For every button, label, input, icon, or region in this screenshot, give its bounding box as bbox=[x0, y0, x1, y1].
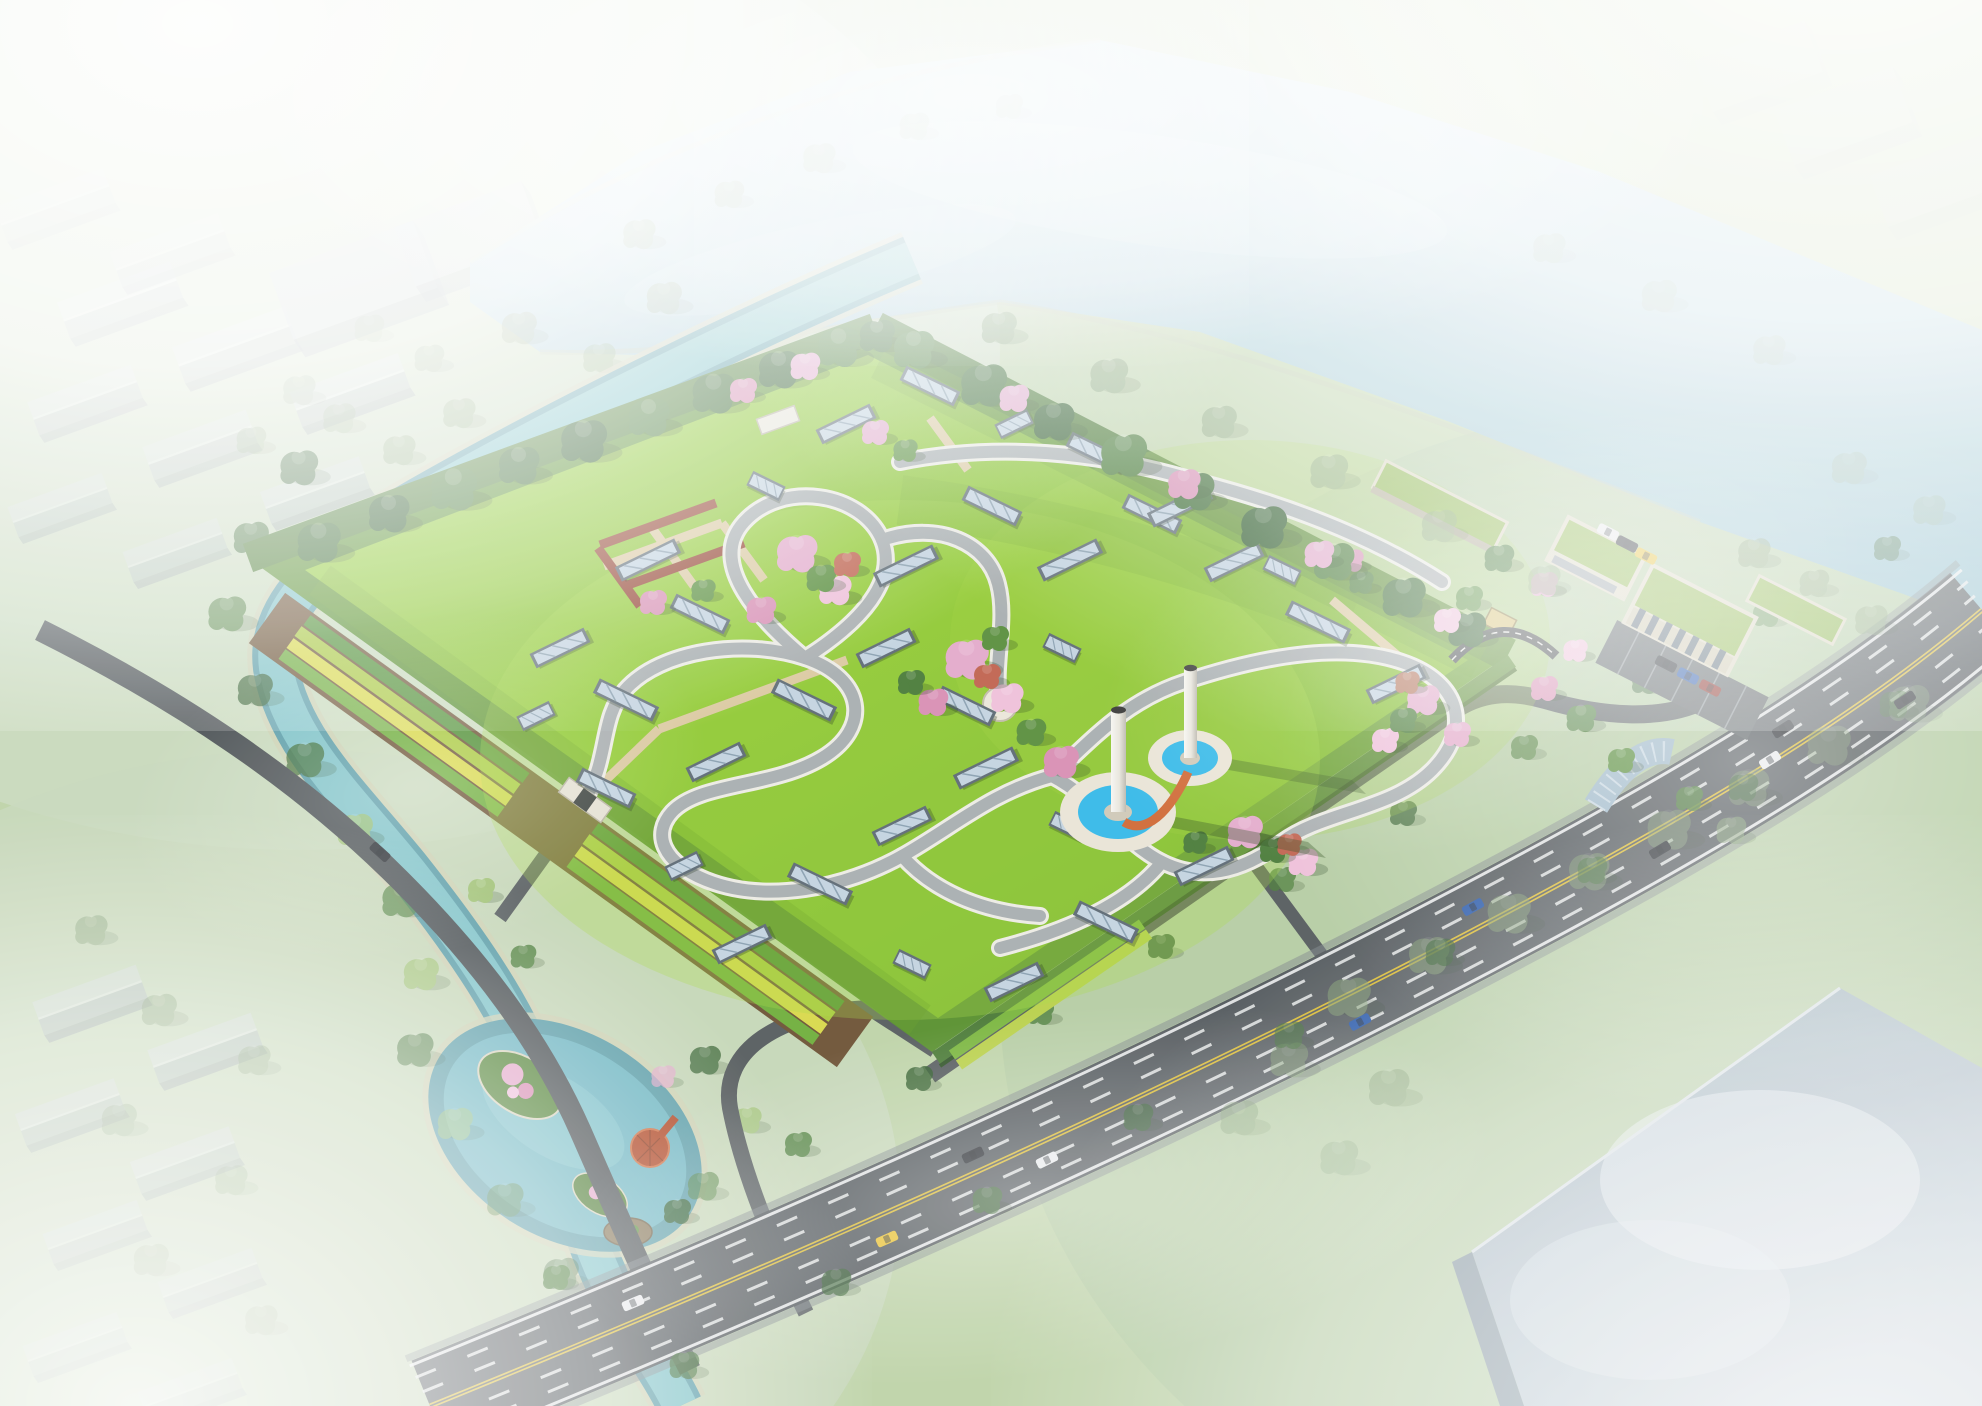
scene-canvas bbox=[0, 0, 1982, 1406]
aerial-rendering bbox=[0, 0, 1982, 1406]
